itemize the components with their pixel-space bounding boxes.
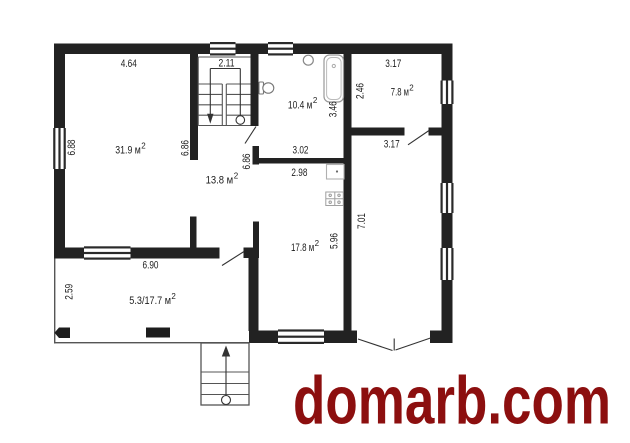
svg-text:17.8 м: 17.8 м xyxy=(291,242,314,254)
svg-text:2: 2 xyxy=(313,96,318,105)
svg-text:3.02: 3.02 xyxy=(293,145,309,157)
svg-text:2: 2 xyxy=(315,239,320,248)
svg-text:5.96: 5.96 xyxy=(329,233,341,249)
svg-text:3.17: 3.17 xyxy=(385,58,401,70)
svg-text:2.98: 2.98 xyxy=(291,167,307,179)
svg-text:2: 2 xyxy=(171,292,176,301)
svg-text:6.86: 6.86 xyxy=(179,140,191,156)
svg-text:7.01: 7.01 xyxy=(356,213,368,229)
svg-text:6.88: 6.88 xyxy=(66,140,78,156)
svg-text:4.64: 4.64 xyxy=(121,58,137,70)
svg-text:3.17: 3.17 xyxy=(384,139,400,151)
svg-text:5.3/17.7 м: 5.3/17.7 м xyxy=(129,295,171,307)
svg-text:domarb.com: domarb.com xyxy=(293,363,611,439)
svg-text:2.46: 2.46 xyxy=(354,83,366,99)
svg-text:6.86: 6.86 xyxy=(241,154,253,170)
svg-text:2.11: 2.11 xyxy=(219,58,235,70)
svg-text:31.9 м: 31.9 м xyxy=(115,145,141,157)
svg-text:2: 2 xyxy=(234,171,239,180)
svg-text:2: 2 xyxy=(141,141,146,150)
svg-text:10.4 м: 10.4 м xyxy=(288,99,313,111)
svg-text:2: 2 xyxy=(409,83,414,92)
svg-text:3.46: 3.46 xyxy=(328,101,340,117)
svg-text:13.8 м: 13.8 м xyxy=(206,175,234,187)
svg-text:7.8 м: 7.8 м xyxy=(391,87,409,99)
svg-text:6.90: 6.90 xyxy=(143,260,159,272)
svg-text:2.59: 2.59 xyxy=(64,284,76,300)
